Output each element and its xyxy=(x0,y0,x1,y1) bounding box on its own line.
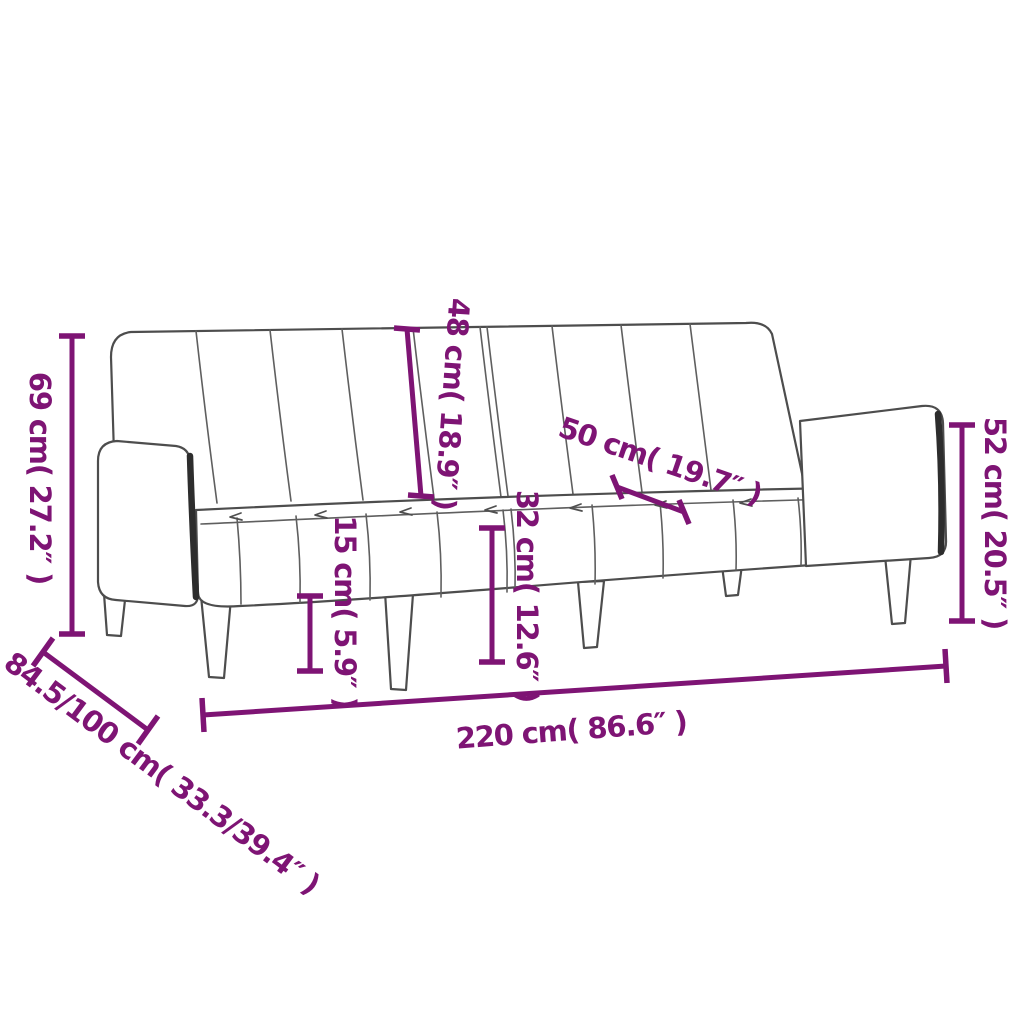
dim-cap xyxy=(202,698,204,732)
dim-armrest-height: 52 cm( 20.5″ ) xyxy=(949,417,1012,629)
dimension-diagram: 69 cm( 27.2″ ) 48 cm( 18.9″ ) 50 cm( 19.… xyxy=(0,0,1024,1024)
seat-height-label: 32 cm( 12.6″ ) xyxy=(510,490,544,702)
dim-cap xyxy=(945,649,947,683)
right-armrest xyxy=(800,406,946,566)
right-armrest-panel xyxy=(800,406,946,566)
armrest-height-label: 52 cm( 20.5″ ) xyxy=(978,417,1012,629)
ground-clearance-label: 15 cm( 5.9″ ) xyxy=(328,515,362,708)
total-depth-label: 84.5/100 cm( 33.3/39.4″ ) xyxy=(0,645,326,901)
dim-cap xyxy=(394,328,420,330)
right-armrest-edge xyxy=(938,414,942,552)
left-armrest-panel xyxy=(98,441,198,606)
total-height-label: 69 cm( 27.2″ ) xyxy=(23,372,57,584)
dim-total-width: 220 cm( 86.6″ ) xyxy=(202,649,947,756)
dim-total-height: 69 cm( 27.2″ ) xyxy=(23,336,85,634)
left-armrest xyxy=(98,441,198,606)
sofa-leg xyxy=(385,592,413,690)
dim-total-depth: 84.5/100 cm( 33.3/39.4″ ) xyxy=(0,638,326,901)
sofa-leg xyxy=(578,581,604,648)
sofa-dimension-drawing: 69 cm( 27.2″ ) 48 cm( 18.9″ ) 50 cm( 19.… xyxy=(0,0,1024,1024)
total-width-label: 220 cm( 86.6″ ) xyxy=(455,704,688,755)
sofa-leg xyxy=(885,554,911,624)
sofa-leg xyxy=(201,596,231,678)
